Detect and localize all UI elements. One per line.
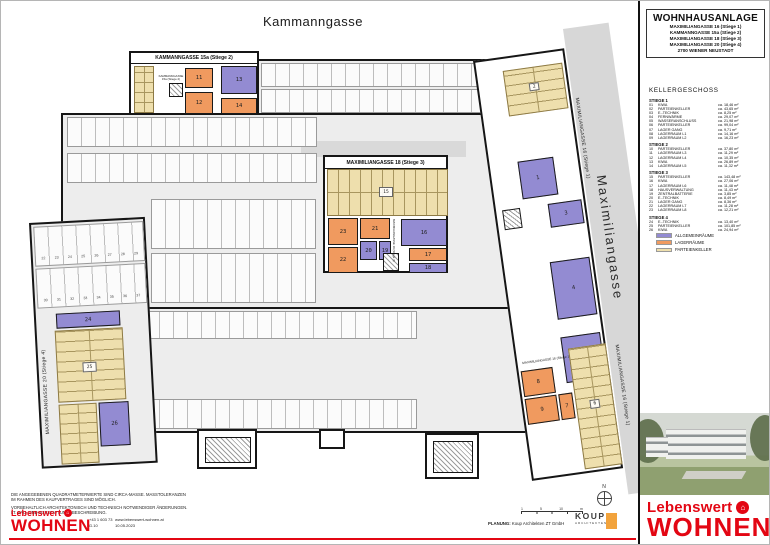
room-6-parteienkeller: 6 <box>589 399 600 409</box>
stiege3-header-label: MAXIMILIANGASSE 18 (Stiege 3) <box>325 157 446 169</box>
title-panel: WOHNHAUSANLAGE MAXIMILIANGASSE 16 (Stieg… <box>638 1 770 545</box>
schedule-room-name: KIWA <box>658 228 718 232</box>
room-18-hausverwaltung: 18 <box>409 263 447 273</box>
room-23-lagerraum: 23 <box>328 218 358 245</box>
edge-label-stiege1-bottom: MAXIMILIANGASSE 16 (Stiege 1) <box>613 344 629 426</box>
contact-phone-block: +43 1 603 73 G.10 <box>89 517 112 528</box>
lebenswert-logo-large: Lebenswert ⌂ WOHNEN <box>647 499 768 539</box>
room-4-fernwaerme: 4 <box>550 257 598 320</box>
street-label-maximiliangasse: Maximiliangasse <box>594 174 626 301</box>
schedule-room-number: 09 <box>649 136 658 140</box>
room-9-lagerraum: 9 <box>525 395 560 425</box>
koup-logo: KOUP ARCHITEKTEN <box>575 512 619 532</box>
parking-stalls <box>261 63 509 87</box>
website-url: www.lebenswert-wohnen.at <box>115 517 164 523</box>
brand-wordmark: WOHNEN <box>11 518 91 533</box>
koup-orange-mark <box>606 513 617 529</box>
parteienkeller-grid-stiege4 <box>59 403 100 465</box>
legend-label: ALLGEMEINRÄUME <box>675 233 714 238</box>
scale-bar: 1510m <box>521 507 583 514</box>
scale-label: 1 <box>521 507 523 511</box>
parking-stalls <box>67 153 317 183</box>
legend-item: LAGERRÄUME <box>656 240 768 245</box>
stiege2-inner-label: KAMMANNGASSE 15a (Stiege 2) <box>157 75 185 82</box>
parking-space-number: 37 <box>136 293 140 297</box>
legend-label: PARTEIENKELLER <box>675 247 712 252</box>
parking-stalls <box>145 311 417 339</box>
parking-stalls <box>145 399 417 429</box>
footer-rule <box>9 538 636 540</box>
room-3-e-technik: 3 <box>548 199 585 227</box>
room-25-parteienkeller: 25 <box>82 362 97 373</box>
stiege3-inner-label: MAXIMILIANGASSE 18 (Stiege 3) <box>392 219 396 262</box>
parking-stalls <box>67 117 317 147</box>
building-stiege-2: KAMMANNGASSE 15a (Stiege 2) 11 13 12 14 … <box>129 51 259 115</box>
schedule-group: STIEGE 101KIWAca. 18,46 m²02PARTEIENKELL… <box>649 98 767 140</box>
room-7-lager-gang: 7 <box>558 392 575 420</box>
room-20-e-technik: 20 <box>360 241 377 260</box>
schedule-room-name: LAGERRAUM L8 <box>658 208 718 212</box>
room-21-lager-gang: 21 <box>360 218 390 239</box>
plan-sheet: Kammanngasse MAXIMILIANGASSE 16 (Stiege … <box>0 0 770 545</box>
floor-plan: Kammanngasse MAXIMILIANGASSE 16 (Stiege … <box>1 1 638 545</box>
legend-label: LAGERRÄUME <box>675 240 704 245</box>
titleblock-address: 2700 WIENER NEUSTADT <box>648 48 763 54</box>
titleblock: WOHNHAUSANLAGE MAXIMILIANGASSE 16 (Stieg… <box>646 9 765 58</box>
room-12-lagerraum: 12 <box>185 92 213 114</box>
legend: ALLGEMEINRÄUMELAGERRÄUMEPARTEIENKELLER <box>656 233 768 255</box>
stairs-icon <box>433 441 473 473</box>
room-17-lagerraum: 17 <box>409 248 447 261</box>
room-26-kiwa: 26 <box>98 401 130 447</box>
tree-art <box>750 415 770 461</box>
schedule-group: STIEGE 424E.-TECHNIKca. 13,40 m²25PARTEI… <box>649 215 767 232</box>
street-label-kammanngasse: Kammanngasse <box>263 14 363 29</box>
room-1-kiwa: 1 <box>517 157 558 200</box>
unit-code: G.10 <box>89 523 112 529</box>
legend-item: PARTEIENKELLER <box>656 247 768 252</box>
parking-space-number: 29 <box>134 251 138 255</box>
parking-space-number: 30 <box>44 298 48 302</box>
titleblock-addresses: MAXIMILIANGASSE 16 (Stiege 1)KAMMANNGASS… <box>648 24 763 54</box>
parking-space-number: 32 <box>70 297 74 301</box>
building-stiege-4: 2223242526272829 3031323334353637 24 25 … <box>29 217 158 469</box>
schedule-row: 26KIWAca. 24,94 m² <box>649 228 767 232</box>
room-schedule-groups: STIEGE 101KIWAca. 18,46 m²02PARTEIENKELL… <box>649 98 767 234</box>
phone-number: +43 1 603 73 <box>89 517 112 523</box>
parking-space-number: 33 <box>83 296 87 300</box>
parking-space-number: 23 <box>55 255 59 259</box>
room-24-e-technik: 24 <box>56 310 121 328</box>
parking-space-number: 25 <box>81 254 85 258</box>
legend-swatch <box>656 240 672 245</box>
building-stiege-3: MAXIMILIANGASSE 18 (Stiege 3) 15 23 21 2… <box>323 155 448 273</box>
room-8-lagerraum: 8 <box>521 367 556 397</box>
stairs-icon <box>205 437 251 463</box>
room-13-kiwa: 13 <box>221 66 257 94</box>
project-photo <box>640 413 770 495</box>
schedule-room-number: 14 <box>649 164 658 168</box>
schedule-room-name: LAGERRAUM L2 <box>658 136 718 140</box>
room-16-kiwa: 16 <box>401 219 447 246</box>
building-art <box>646 437 668 457</box>
project-title: WOHNHAUSANLAGE <box>648 13 763 24</box>
path-art <box>682 471 747 479</box>
planung-label: PLANUNG: <box>488 521 511 526</box>
scale-label: 10 <box>559 507 563 511</box>
schedule-row: 14LAGERRAUM L5ca. 11,32 m² <box>649 164 767 168</box>
schedule-room-area: ca. 24,94 m² <box>718 228 767 232</box>
schedule-group: STIEGE 210PARTEIENKELLERca. 37,80 m²11LA… <box>649 142 767 167</box>
parking-stalls <box>151 199 316 249</box>
north-label: N <box>595 484 613 490</box>
schedule-room-name: LAGERRAUM L5 <box>658 164 718 168</box>
parking-space-number: 26 <box>94 253 98 257</box>
schedule-room-area: ca. 11,32 m² <box>718 164 767 168</box>
parteienkeller-grid-stiege2 <box>134 66 154 113</box>
parking-space-number: 27 <box>108 253 112 257</box>
scale-label: 5 <box>540 507 542 511</box>
north-arrow: N <box>595 484 613 506</box>
schedule-heading: KELLERGESCHOSS <box>649 87 719 94</box>
parking-stalls <box>151 253 316 303</box>
legend-item: ALLGEMEINRÄUME <box>656 233 768 238</box>
plan-date: 10.05.2023 <box>115 523 164 529</box>
room-2-parteienkeller: 2 <box>529 82 540 91</box>
stiege2-header-label: KAMMANNGASSE 15a (Stiege 2) <box>131 53 257 64</box>
schedule-group: STIEGE 315PARTEIENKELLERca. 143,48 m²16K… <box>649 170 767 212</box>
building-art <box>666 429 746 459</box>
parking-stalls <box>261 89 509 113</box>
scale-line <box>521 511 583 514</box>
stairwell <box>425 433 479 479</box>
stiege4-street-label: MAXIMILIANGASSE 20 (Stiege 4) <box>39 320 53 464</box>
compass-icon <box>597 491 612 506</box>
legend-swatch <box>656 233 672 238</box>
elevator-core <box>169 83 183 97</box>
schedule-room-number: 26 <box>649 228 658 232</box>
elevator-core <box>383 253 399 271</box>
room-22-lagerraum: 22 <box>328 247 358 273</box>
elevator-core <box>502 208 523 230</box>
planung-credit: PLANUNG: Koup Architekten ZT GmbH <box>488 521 564 526</box>
lebenswert-logo-small: Lebenswert ⌂ WOHNEN <box>11 508 91 533</box>
schedule-row: 09LAGERRAUM L2ca. 16,23 m² <box>649 136 767 140</box>
room-14-lagerraum: 14 <box>221 98 257 114</box>
schedule-room-area: ca. 16,23 m² <box>718 136 767 140</box>
contact-web-block: www.lebenswert-wohnen.at 10.05.2023 <box>115 517 164 528</box>
legend-swatch <box>656 248 672 253</box>
schedule-row: 23LAGERRAUM L8ca. 12,21 m² <box>649 208 767 212</box>
shaft <box>319 429 345 449</box>
room-11-lagerraum: 11 <box>185 68 213 88</box>
parking-space-number: 28 <box>121 252 125 256</box>
parking-space-number: 24 <box>68 255 72 259</box>
disclaimer-line: IM RAHMEN DES KAUFVERTRAGES SIND MÖGLICH… <box>11 497 246 502</box>
room-15-parteienkeller: 15 <box>379 187 393 197</box>
parking-space-number: 34 <box>97 295 101 299</box>
parking-space-number: 36 <box>123 294 127 298</box>
stairwell <box>197 429 257 469</box>
parking-space-number: 35 <box>110 295 114 299</box>
schedule-room-area: ca. 12,21 m² <box>718 208 767 212</box>
parking-space-number: 31 <box>57 297 61 301</box>
footer: N DIE ANGEGEBENEN QUADRATMETERWERTE SIND… <box>1 486 638 545</box>
brand-wordmark: WOHNEN <box>647 516 768 539</box>
schedule-room-number: 23 <box>649 208 658 212</box>
planung-value: Koup Architekten ZT GmbH <box>512 521 564 526</box>
parking-space-number: 22 <box>41 256 45 260</box>
